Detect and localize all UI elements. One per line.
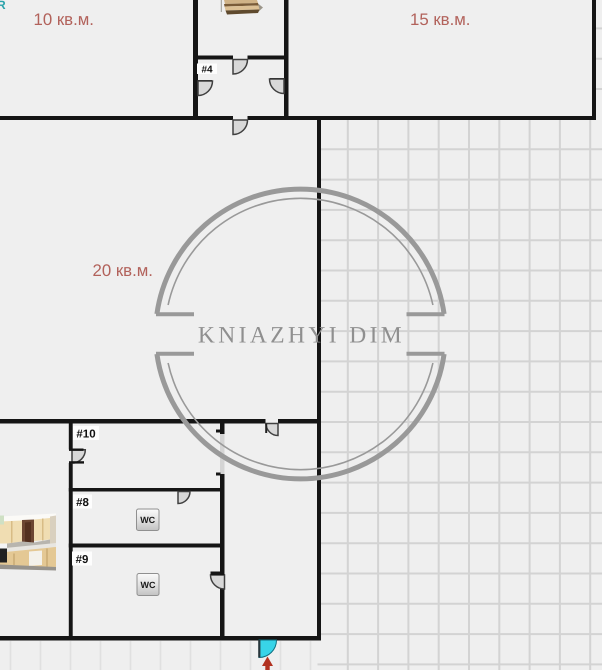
svg-text:#4: #4 bbox=[201, 65, 213, 76]
svg-text:#10: #10 bbox=[76, 429, 95, 441]
svg-text:#8: #8 bbox=[76, 497, 89, 509]
svg-text:R: R bbox=[0, 0, 6, 12]
svg-text:15 кв.м.: 15 кв.м. bbox=[410, 10, 470, 29]
svg-text:10 кв.м.: 10 кв.м. bbox=[34, 10, 94, 29]
svg-text:#9: #9 bbox=[76, 554, 89, 566]
svg-text:KNIAZHYI DIM: KNIAZHYI DIM bbox=[198, 323, 405, 349]
svg-text:20 кв.м.: 20 кв.м. bbox=[93, 261, 153, 280]
svg-text:WC: WC bbox=[140, 515, 155, 525]
svg-text:WC: WC bbox=[141, 580, 156, 590]
